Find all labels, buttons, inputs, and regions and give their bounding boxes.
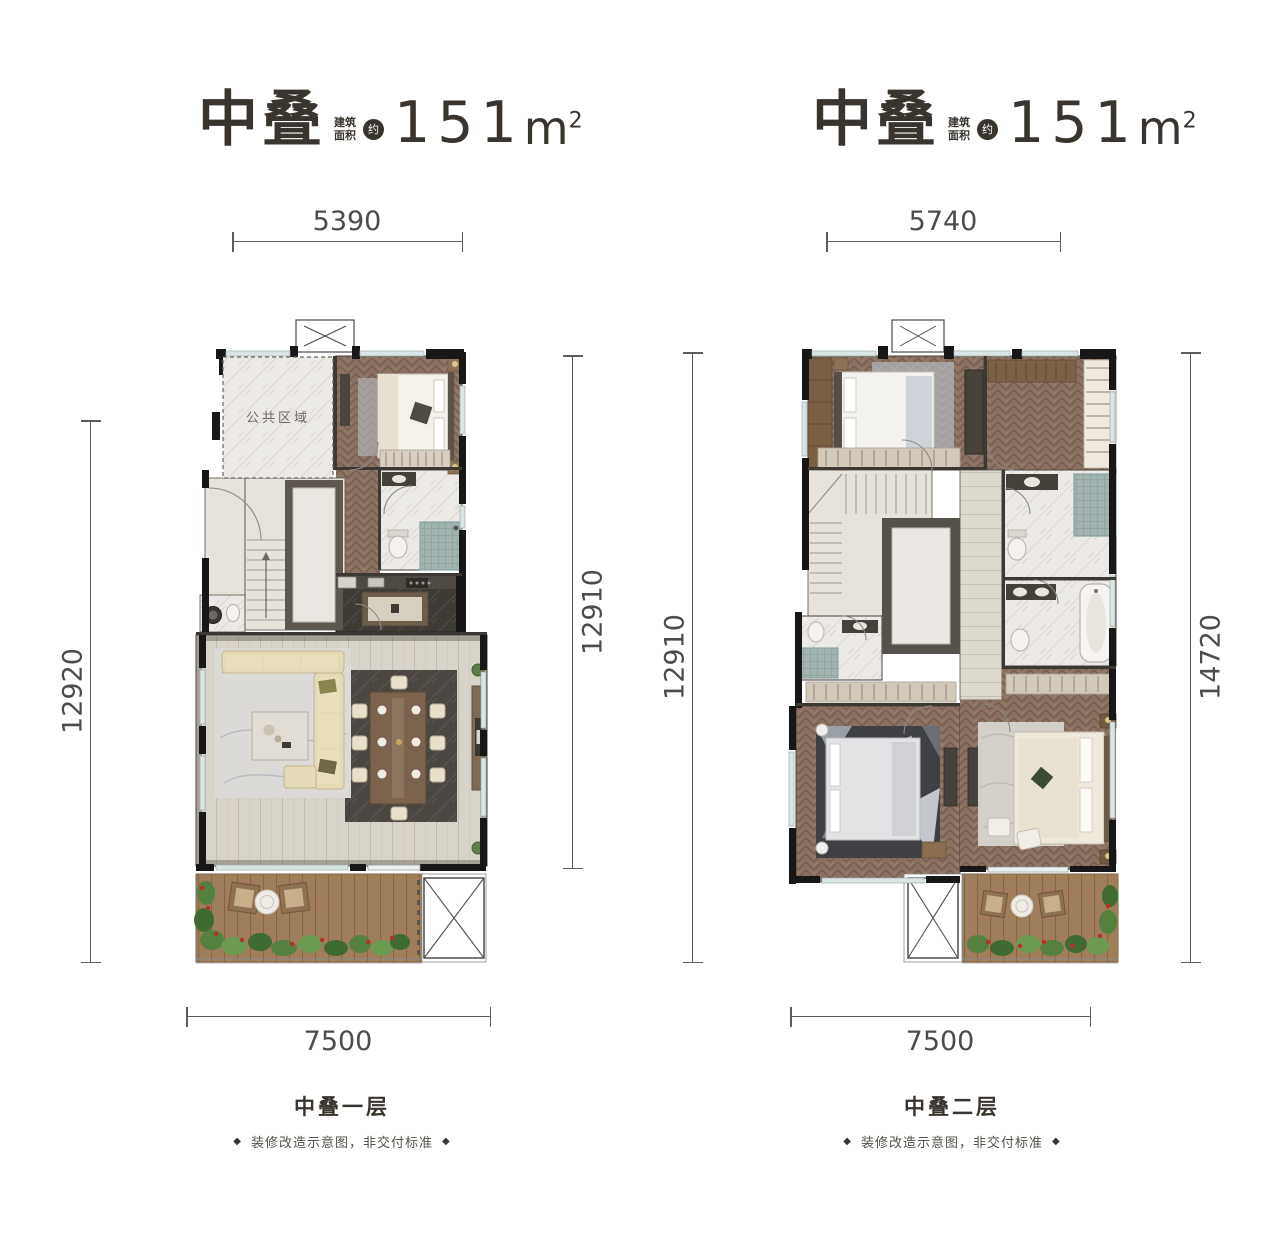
- plan1-area-label: 建筑面积: [334, 116, 360, 144]
- plan2-area-unit: m2: [1138, 108, 1197, 149]
- plan1-caption-title: 中叠一层: [192, 1091, 492, 1121]
- plan1-disclaimer: ◆ 装修改造示意图，非交付标准 ◆: [192, 1132, 492, 1151]
- plan1-dim-top: 5390: [232, 241, 462, 242]
- diamond-icon: ◆: [843, 1136, 852, 1147]
- plan1-approx-badge: 约: [363, 119, 384, 140]
- plan2-approx-badge: 约: [977, 119, 998, 140]
- plan2-caption: 中叠二层 ◆ 装修改造示意图，非交付标准 ◆: [802, 1091, 1102, 1151]
- flue-box: [296, 320, 354, 352]
- plan2-disclaimer: ◆ 装修改造示意图，非交付标准 ◆: [802, 1132, 1102, 1151]
- public-area: 公共区域: [223, 357, 333, 478]
- floorplan-sheet: 中叠 建筑面积 约 151 m2 中叠 建筑面积 约 151 m2 5390 1…: [0, 0, 1280, 1241]
- plan2-title-text: 中叠: [812, 92, 940, 149]
- plan1-title: 中叠 建筑面积 约 151 m2: [198, 92, 583, 149]
- plan2-dim-bottom: 7500: [790, 1016, 1090, 1017]
- plan1-dim-right: 12910: [572, 355, 573, 868]
- plan2-caption-title: 中叠二层: [802, 1091, 1102, 1121]
- plan1-caption: 中叠一层 ◆ 装修改造示意图，非交付标准 ◆: [192, 1091, 492, 1151]
- plan1-area-value: 151: [394, 98, 524, 149]
- plan1-dim-bottom: 7500: [186, 1016, 490, 1017]
- diamond-icon: ◆: [442, 1136, 451, 1147]
- diamond-icon: ◆: [233, 1136, 242, 1147]
- wardrobe-strip: [806, 682, 956, 702]
- public-area-label: 公共区域: [246, 411, 310, 426]
- plan2-area-label: 建筑面积: [948, 116, 974, 144]
- shaft-box: [908, 878, 958, 958]
- plan1-area-unit: m2: [524, 108, 583, 149]
- plan1-floorplan: 公共区域: [172, 318, 512, 966]
- plan2-area-value: 151: [1008, 98, 1138, 149]
- plan2-dim-left: 12910: [692, 352, 693, 962]
- plan1-title-text: 中叠: [198, 92, 326, 149]
- plan2-dim-right: 14720: [1190, 352, 1191, 962]
- plan2-title: 中叠 建筑面积 约 151 m2: [812, 92, 1197, 149]
- plan2-floorplan: [782, 318, 1122, 966]
- plan2-dim-top: 5740: [826, 241, 1060, 242]
- elevator-shaft: [417, 878, 484, 958]
- plan1-dim-left: 12920: [90, 420, 91, 962]
- living-room: [215, 648, 351, 798]
- flue-box-2: [892, 320, 944, 352]
- diamond-icon: ◆: [1052, 1136, 1061, 1147]
